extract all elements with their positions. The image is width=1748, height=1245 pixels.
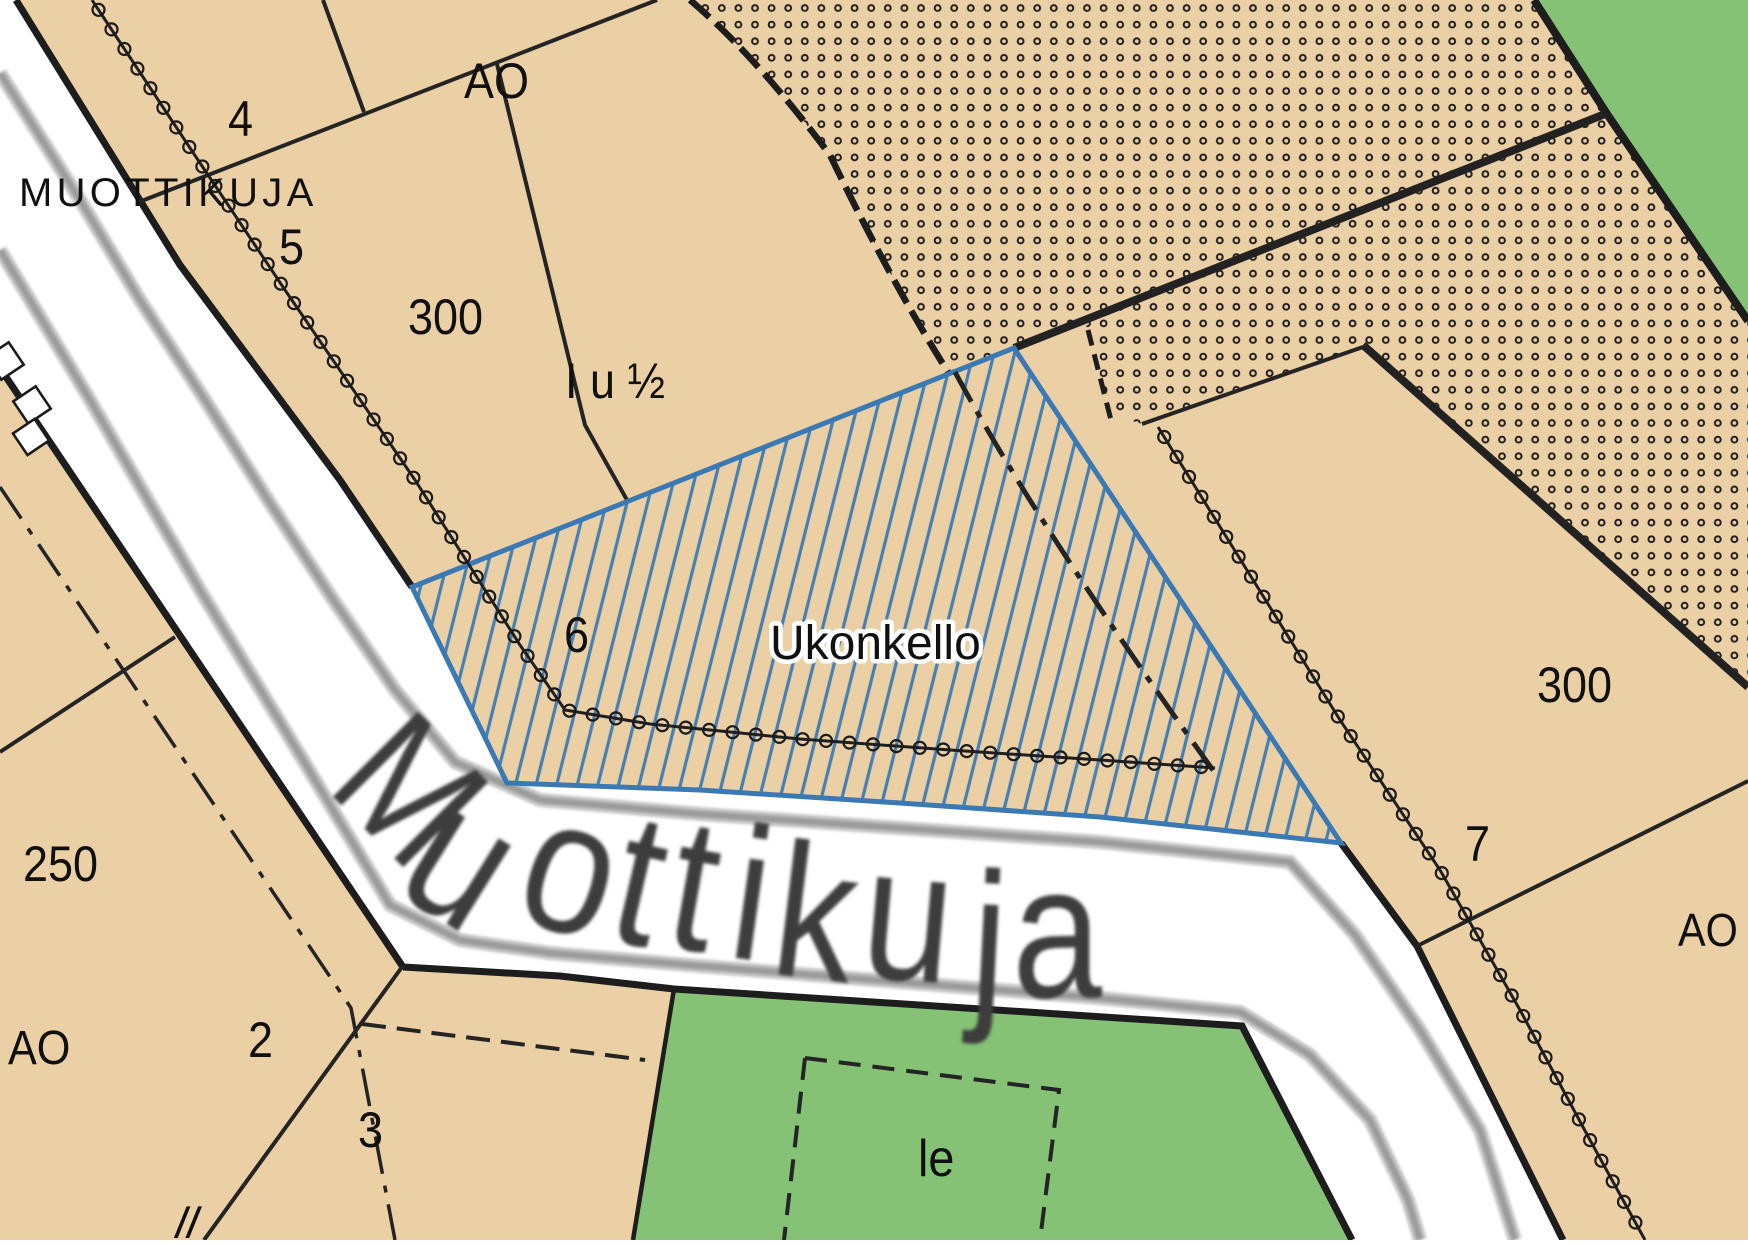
- svg-text:AO: AO: [8, 1021, 70, 1075]
- svg-text:2: 2: [248, 1013, 273, 1069]
- svg-text:300: 300: [1537, 658, 1612, 714]
- svg-text:250: 250: [23, 837, 98, 893]
- svg-text:7: 7: [1465, 817, 1490, 873]
- svg-text:AO: AO: [1678, 905, 1738, 957]
- svg-text:a: a: [1012, 826, 1103, 1038]
- svg-text:6: 6: [564, 608, 589, 664]
- svg-text:300: 300: [408, 290, 483, 346]
- svg-text:AO: AO: [464, 54, 529, 110]
- svg-text:5: 5: [279, 220, 304, 276]
- svg-text:4: 4: [228, 92, 253, 148]
- svg-text:u: u: [855, 805, 963, 1024]
- svg-text:le: le: [918, 1130, 954, 1188]
- svg-text:MUOTTIKUJA: MUOTTIKUJA: [19, 171, 318, 215]
- svg-text:3: 3: [358, 1103, 383, 1159]
- svg-text:Ukonkello: Ukonkello: [770, 617, 981, 670]
- svg-text:I u ½: I u ½: [565, 354, 665, 410]
